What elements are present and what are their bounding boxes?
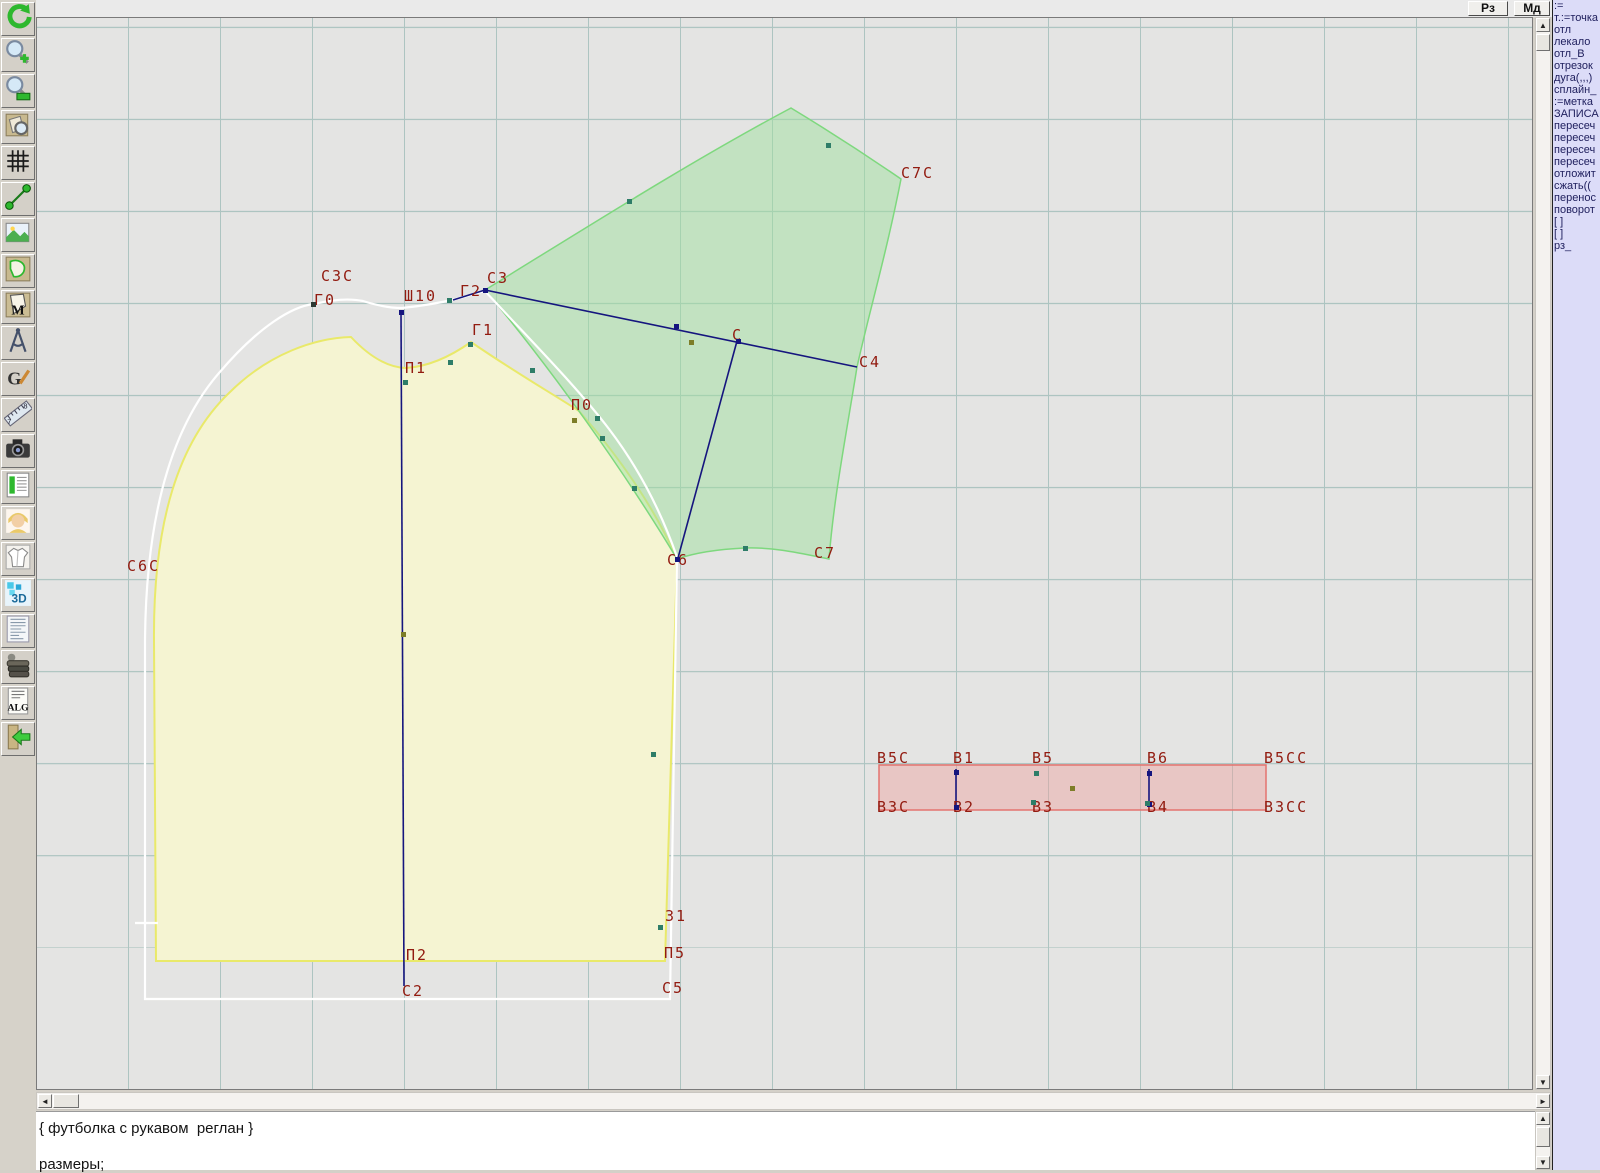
drawing-canvas[interactable]: С3СГ0Ш10Г2С3Г1П1П0С7ССС4С6СС6С7В5СВ1В5В6… (36, 17, 1533, 1090)
point-label: В1 (953, 749, 975, 767)
point-marker[interactable] (954, 770, 959, 775)
3d-button[interactable]: 3D (1, 578, 35, 612)
image-button[interactable] (1, 218, 35, 252)
point-label: З1 (665, 907, 687, 925)
editor-line: размеры; (39, 1156, 104, 1173)
scroll-up-button[interactable]: ▲ (1536, 18, 1550, 32)
compass-button[interactable] (1, 326, 35, 360)
point-label: П1 (405, 359, 427, 377)
books-button[interactable] (1, 650, 35, 684)
point-marker[interactable] (1031, 800, 1036, 805)
command-item[interactable]: ЗАПИСА (1553, 108, 1600, 120)
books-icon (4, 651, 32, 684)
hscroll-thumb[interactable] (53, 1094, 79, 1108)
pattern-piece-icon (4, 255, 32, 288)
editor-scroll-up-button[interactable]: ▲ (1536, 1112, 1550, 1125)
measure-segment-icon (4, 183, 32, 216)
point-label: С3С (321, 267, 354, 285)
point-label: В3СС (1264, 798, 1308, 816)
command-item[interactable]: пересеч (1553, 132, 1600, 144)
point-marker[interactable] (403, 380, 408, 385)
command-item[interactable]: перенос (1553, 192, 1600, 204)
svg-text:7: 7 (7, 416, 11, 425)
compass-icon (4, 327, 32, 360)
point-marker[interactable] (530, 368, 535, 373)
canvas-vscrollbar[interactable]: ▲ ▼ (1535, 17, 1551, 1090)
point-marker[interactable] (1070, 786, 1075, 791)
svg-text:3D: 3D (12, 591, 28, 605)
alg-icon: ALG (4, 687, 32, 720)
portrait-button[interactable] (1, 506, 35, 540)
document-list-icon (4, 615, 32, 648)
alg-button[interactable]: ALG (1, 686, 35, 720)
undo-icon (4, 3, 32, 36)
vscroll-thumb[interactable] (1536, 34, 1550, 51)
pattern-drawing (37, 18, 1533, 1090)
svg-text:8: 8 (23, 401, 27, 410)
point-marker[interactable] (627, 199, 632, 204)
point-label: П0 (571, 396, 593, 414)
exit-icon (4, 723, 32, 756)
size-table-icon (4, 471, 32, 504)
command-item[interactable]: [ ] (1553, 216, 1600, 228)
camera-icon (4, 435, 32, 468)
point-marker[interactable] (600, 436, 605, 441)
point-marker[interactable] (311, 302, 316, 307)
point-marker[interactable] (399, 310, 404, 315)
command-item[interactable]: отложит (1553, 168, 1600, 180)
editor-vscrollbar[interactable]: ▲ ▼ (1535, 1111, 1551, 1170)
point-label: С6С (127, 557, 160, 575)
point-label: В5С (877, 749, 910, 767)
point-label: В4 (1147, 798, 1169, 816)
point-label: Г1 (472, 321, 494, 339)
point-marker[interactable] (572, 418, 577, 423)
command-item[interactable]: отрезок (1553, 60, 1600, 72)
command-item[interactable]: := (1553, 0, 1600, 12)
editor-line: { футболка с рукавом реглан } (39, 1120, 253, 1137)
pattern-piece-button[interactable] (1, 254, 35, 288)
zoom-in-icon (4, 39, 32, 72)
point-marker[interactable] (651, 752, 656, 757)
point-label: С2 (402, 982, 424, 1000)
zoom-tool-button[interactable] (1, 74, 35, 108)
point-marker[interactable] (736, 339, 741, 344)
document-list-button[interactable] (1, 614, 35, 648)
point-label: В6 (1147, 749, 1169, 767)
left-toolbar: MG783DALG (0, 0, 36, 1170)
command-item[interactable]: сжать(( (1553, 180, 1600, 192)
program-text-editor[interactable]: { футболка с рукавом реглан } размеры; (36, 1111, 1535, 1170)
point-marker[interactable] (483, 288, 488, 293)
point-marker[interactable] (674, 324, 679, 329)
pattern-m-icon: M (4, 291, 32, 324)
point-label: В5 (1032, 749, 1054, 767)
command-item[interactable]: пересеч (1553, 156, 1600, 168)
scroll-left-button[interactable]: ◄ (38, 1094, 52, 1108)
ruler-icon: 78 (4, 399, 32, 432)
point-marker[interactable] (826, 143, 831, 148)
svg-text:M: M (11, 303, 24, 318)
point-label: Г0 (314, 291, 336, 309)
portrait-icon (4, 507, 32, 540)
scroll-down-button[interactable]: ▼ (1536, 1075, 1550, 1089)
point-label: В3С (877, 798, 910, 816)
point-marker[interactable] (689, 340, 694, 345)
point-label: С7 (814, 544, 836, 562)
command-item[interactable]: поворот (1553, 204, 1600, 216)
point-label: П5 (664, 944, 686, 962)
point-marker[interactable] (595, 416, 600, 421)
command-item[interactable]: :=метка (1553, 96, 1600, 108)
point-label: Г2 (460, 282, 482, 300)
scroll-right-button[interactable]: ► (1536, 1094, 1550, 1108)
command-panel: :=т.:=точкаотллекалоотл_Вотрезокдуга(,,,… (1552, 0, 1600, 1170)
point-label: С4 (859, 353, 881, 371)
command-item[interactable]: рз_ (1553, 240, 1600, 252)
point-marker[interactable] (447, 298, 452, 303)
garment-sketch-button[interactable] (1, 542, 35, 576)
point-marker[interactable] (468, 342, 473, 347)
g-tool-icon: G (4, 363, 32, 396)
command-item[interactable]: дуга(,,,) (1553, 72, 1600, 84)
command-item[interactable]: лекало (1553, 36, 1600, 48)
command-item[interactable]: пересеч (1553, 144, 1600, 156)
command-item[interactable]: т.:=точка (1553, 12, 1600, 24)
canvas-hscrollbar[interactable]: ◄ ► (36, 1092, 1551, 1110)
exit-button[interactable] (1, 722, 35, 756)
3d-icon: 3D (4, 579, 32, 612)
rz-button[interactable]: Рз (1468, 1, 1508, 16)
point-marker[interactable] (448, 360, 453, 365)
point-marker[interactable] (1147, 771, 1152, 776)
svg-text:G: G (7, 368, 21, 388)
piece-preview-button[interactable] (1, 110, 35, 144)
point-marker[interactable] (1034, 771, 1039, 776)
command-item[interactable]: [ ] (1553, 228, 1600, 240)
grid-button[interactable] (1, 146, 35, 180)
size-table-button[interactable] (1, 470, 35, 504)
g-tool-button[interactable]: G (1, 362, 35, 396)
camera-button[interactable] (1, 434, 35, 468)
point-label: С3 (487, 269, 509, 287)
point-label: С5 (662, 979, 684, 997)
point-label: Ш10 (404, 287, 437, 305)
point-label: С7С (901, 164, 934, 182)
point-marker[interactable] (658, 925, 663, 930)
measure-segment-button[interactable] (1, 182, 35, 216)
grid-icon (4, 147, 32, 180)
editor-vscroll-thumb[interactable] (1536, 1127, 1550, 1147)
point-marker[interactable] (1145, 801, 1150, 806)
point-label: В5СС (1264, 749, 1308, 767)
piece-preview-icon (4, 111, 32, 144)
undo-button[interactable] (1, 2, 35, 36)
svg-text:ALG: ALG (8, 702, 29, 713)
point-marker[interactable] (954, 805, 959, 810)
point-marker[interactable] (743, 546, 748, 551)
garment-sketch-icon (4, 543, 32, 576)
zoom-tool-icon (4, 75, 32, 108)
md-button[interactable]: Мд (1514, 1, 1550, 16)
command-item[interactable]: отл (1553, 24, 1600, 36)
top-strip: Рз Мд (36, 0, 1552, 17)
point-marker[interactable] (632, 486, 637, 491)
editor-scroll-down-button[interactable]: ▼ (1536, 1156, 1550, 1169)
command-item[interactable]: пересеч (1553, 120, 1600, 132)
point-marker[interactable] (675, 557, 680, 562)
zoom-in-button[interactable] (1, 38, 35, 72)
point-label: П2 (406, 946, 428, 964)
command-item[interactable]: отл_В (1553, 48, 1600, 60)
command-item[interactable]: сплайн_ (1553, 84, 1600, 96)
pattern-m-button[interactable]: M (1, 290, 35, 324)
ruler-button[interactable]: 78 (1, 398, 35, 432)
point-marker[interactable] (401, 632, 406, 637)
image-icon (4, 219, 32, 252)
